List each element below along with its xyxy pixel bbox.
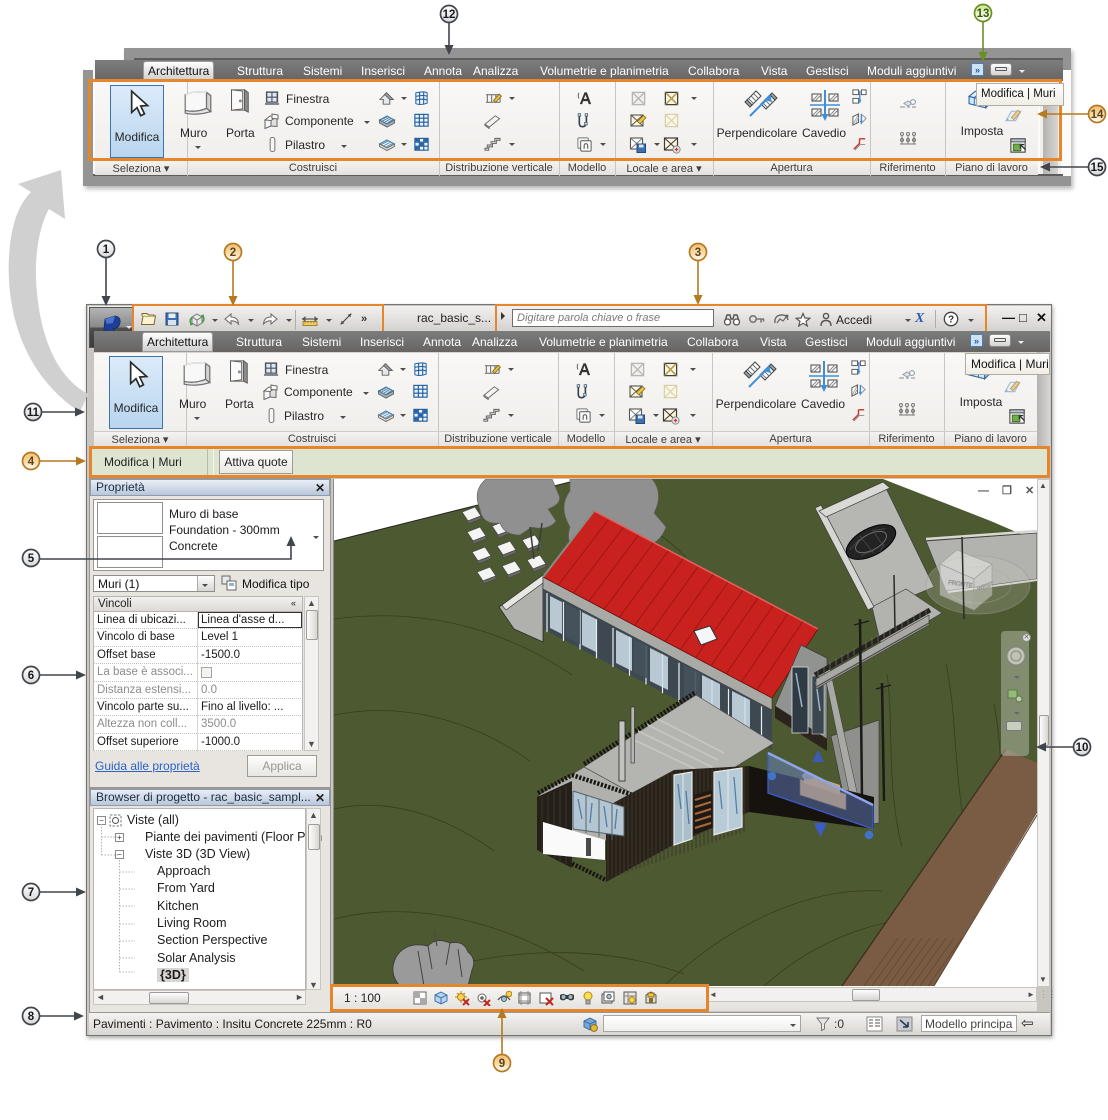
svg-text:14: 14: [1091, 109, 1104, 121]
svg-text:9: 9: [499, 1058, 505, 1070]
svg-text:2: 2: [230, 247, 236, 259]
svg-text:7: 7: [28, 887, 34, 899]
svg-text:10: 10: [1076, 742, 1089, 754]
svg-text:15: 15: [1091, 162, 1104, 174]
svg-text:11: 11: [27, 407, 40, 419]
svg-text:13: 13: [977, 8, 990, 20]
svg-text:1: 1: [103, 244, 110, 256]
svg-text:8: 8: [28, 1011, 35, 1023]
svg-text:4: 4: [28, 456, 35, 468]
svg-text:12: 12: [443, 9, 456, 21]
svg-text:5: 5: [28, 553, 35, 565]
svg-text:6: 6: [28, 670, 34, 682]
svg-text:3: 3: [695, 247, 701, 259]
